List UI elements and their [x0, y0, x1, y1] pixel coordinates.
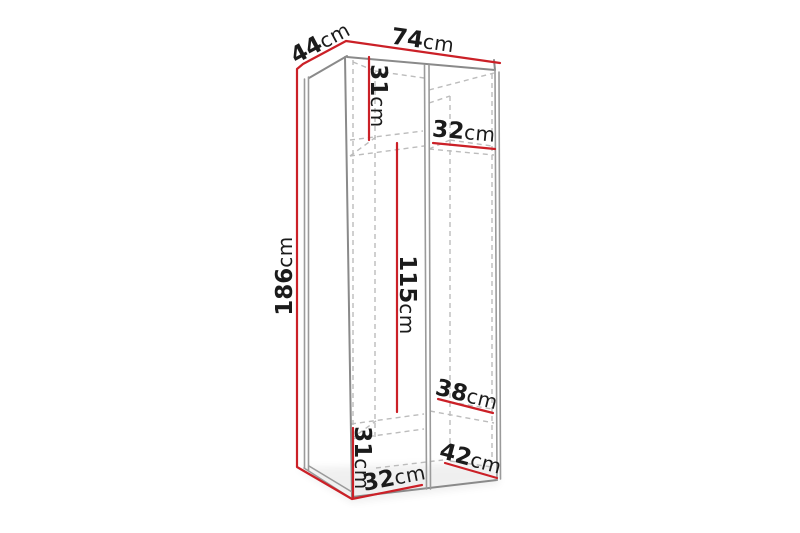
product-diagram-page: 44cm 74cm 31cm 32cm 186cm 115cm 38cm 31 [0, 0, 800, 533]
dim-label-hanging-section-height: 115cm [394, 255, 420, 335]
dim-label-top-width: 74cm [390, 24, 457, 59]
dim-label-overall-height: 186cm [272, 236, 298, 316]
dim-label-upper-left-section-height: 31cm [365, 64, 391, 128]
wardrobe-dimension-diagram: 44cm 74cm 31cm 32cm 186cm 115cm 38cm 31 [0, 0, 800, 533]
dimension-labels: 44cm 74cm 31cm 32cm 186cm 115cm 38cm 31 [272, 16, 505, 496]
dim-label-right-shelf-depth: 38cm [433, 375, 501, 416]
dim-label-upper-right-shelf-width: 32cm [431, 116, 497, 147]
